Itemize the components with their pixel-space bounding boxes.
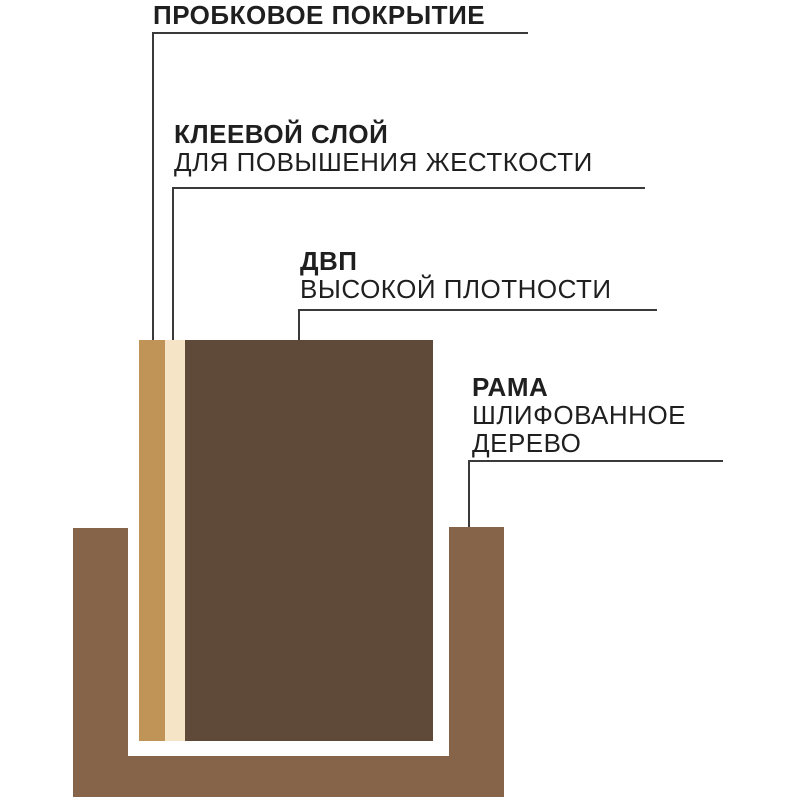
label-cork-cover-title: ПРОБКОВОЕ ПОКРЫТИЕ (153, 1, 485, 29)
leader-line-frame-vertical (468, 460, 470, 528)
leader-line-frame-horizontal (468, 460, 723, 462)
label-frame-wood: РАМА ШЛИФОВАННОЕ ДЕРЕВО (472, 373, 742, 457)
label-hdf-panel-title: ДВП (300, 247, 612, 275)
label-hdf-panel-subtitle: ВЫСОКОЙ ПЛОТНОСТИ (300, 275, 612, 303)
leader-line-hdf-horizontal (298, 309, 657, 311)
label-glue-layer-subtitle: ДЛЯ ПОВЫШЕНИЯ ЖЕСТКОСТИ (174, 148, 593, 176)
label-cork-cover: ПРОБКОВОЕ ПОКРЫТИЕ (153, 1, 485, 29)
leader-line-cork-vertical (152, 32, 154, 340)
label-hdf-panel: ДВП ВЫСОКОЙ ПЛОТНОСТИ (300, 247, 612, 303)
frame-bottom-bar (73, 756, 504, 797)
leader-line-cork-horizontal (152, 32, 528, 34)
cork-layer-swatch (139, 340, 165, 741)
leader-line-glue-horizontal (172, 187, 645, 189)
hdf-panel-swatch (185, 340, 433, 741)
glue-layer-swatch (165, 340, 185, 741)
label-glue-layer: КЛЕЕВОЙ СЛОЙ ДЛЯ ПОВЫШЕНИЯ ЖЕСТКОСТИ (174, 120, 593, 176)
leader-line-glue-vertical (172, 187, 174, 340)
leader-line-hdf-vertical (298, 309, 300, 340)
label-frame-wood-subtitle: ШЛИФОВАННОЕ ДЕРЕВО (472, 401, 742, 457)
label-glue-layer-title: КЛЕЕВОЙ СЛОЙ (174, 120, 593, 148)
label-frame-wood-title: РАМА (472, 373, 742, 401)
cork-board-layers-diagram: ПРОБКОВОЕ ПОКРЫТИЕ КЛЕЕВОЙ СЛОЙ ДЛЯ ПОВЫ… (0, 0, 800, 800)
